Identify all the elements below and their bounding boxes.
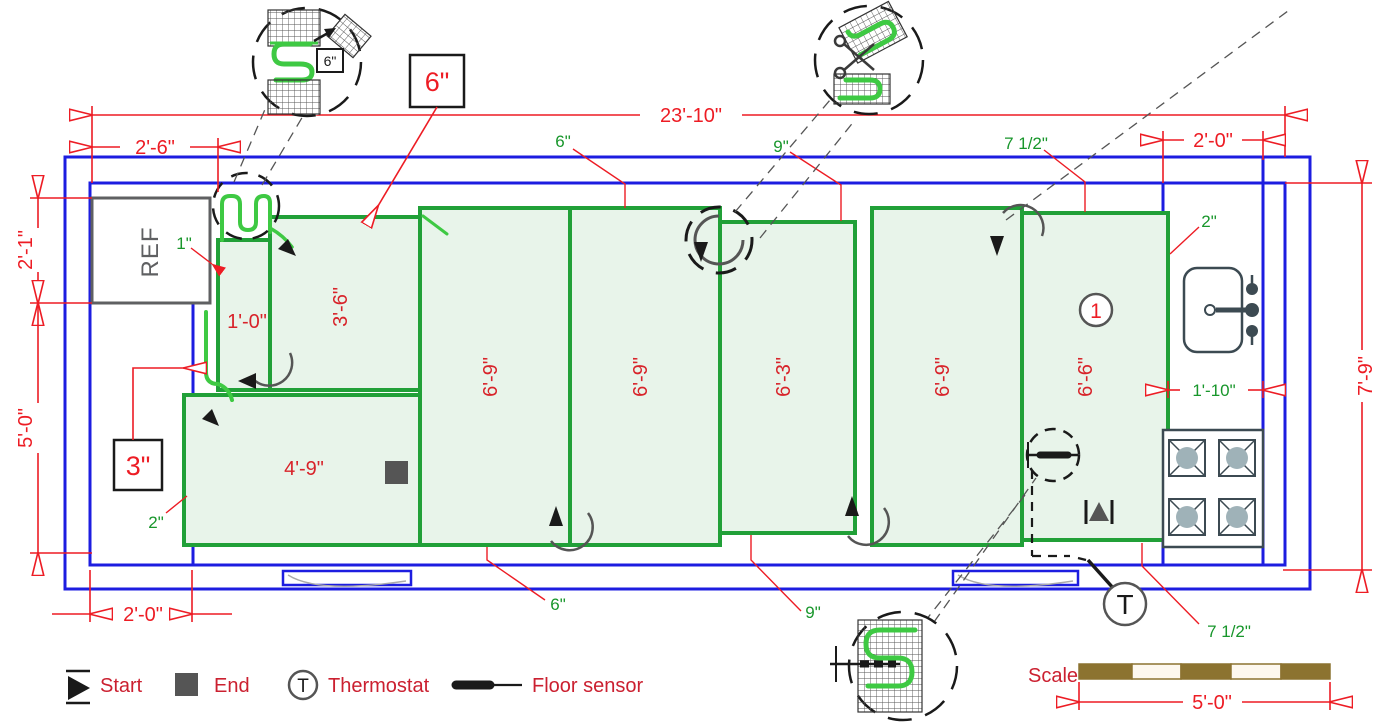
mat-1-0-label: 1'-0" [227,311,267,333]
end-square-icon [175,673,198,696]
legend: Start End T Thermostat Floor sensor [66,671,643,703]
refrigerator: REF [92,198,210,303]
ref-label: REF [137,227,164,278]
mat-6-6-label: 6'-6" [1075,357,1097,397]
offset-bottom-third: 7 1/2" [1207,622,1251,641]
mat-6-3-label: 6'-3" [773,357,795,397]
offset-bottom-second: 9" [805,603,821,622]
dim-counter-width: 1'-10" [1192,381,1235,400]
detail-circle-cut [815,1,923,114]
legend-end-label: End [214,675,250,697]
mat-mesh-icon [268,10,320,46]
dim-total-width: 23'-10" [660,105,722,127]
scale-segment [1132,664,1181,679]
dim-top-left: 2'-6" [135,137,175,159]
offset-ref-gap: 1" [176,234,192,253]
scale-bar: Scale 5'-0" [1028,664,1330,714]
sink [1184,268,1259,352]
start-icon [66,671,90,703]
legend-floor-sensor-label: Floor sensor [532,675,643,697]
detail-circle-mat-spacing: 6" [253,8,371,116]
sink-knob-icon [1246,283,1258,295]
scale-length: 5'-0" [1192,692,1232,714]
dim-bottom-left: 2'-0" [123,604,163,626]
spacing-6-text: 6" [425,67,450,97]
mat-3-6-label: 3'-6" [330,287,352,327]
thermostat-letter: T [1116,589,1133,620]
legend-start-label: Start [100,675,143,697]
legend-thermostat-letter: T [297,676,309,697]
mat-number-text: 1 [1090,300,1102,323]
floor-heating-plan: 1'-0" 3'-6" 4'-9" 6'-9" 6'-9" 6'-3" 6'-9… [0,0,1400,726]
scale-segment [1079,664,1132,679]
spacing-3-leader [133,368,184,440]
scale-segment [1181,664,1231,679]
sink-faucet-icon [1245,303,1259,317]
offset-top-third: 7 1/2" [1004,134,1048,153]
legend-thermostat-label: Thermostat [328,675,430,697]
offset-top-first: 6" [555,132,571,151]
sink-knob-icon [1246,325,1258,337]
scale-segment [1281,664,1330,679]
detail-spacing-text: 6" [324,53,337,69]
mat-number-callout: 1 [1080,294,1112,326]
spacing-3-text: 3" [126,451,151,481]
dim-right-height: 7'-9" [1355,356,1377,396]
mat-6-9-b-label: 6'-9" [630,357,652,397]
detail-circle-sensor [830,612,957,720]
heating-mats [184,208,1168,545]
offset-left-bottom: 2" [148,513,164,532]
offset-bottom-first: 6" [550,595,566,614]
offset-top-second: 9" [773,137,789,156]
stove [1163,430,1263,547]
dim-top-right: 2'-0" [1193,130,1233,152]
dim-left-upper: 2'-1" [15,230,37,270]
dim-left-lower: 5'-0" [15,408,37,448]
scale-label: Scale [1028,665,1078,687]
plan-canvas: 1'-0" 3'-6" 4'-9" 6'-9" 6'-9" 6'-3" 6'-9… [0,0,1400,726]
mat-6-9-a-label: 6'-9" [480,357,502,397]
mat-6-9-c-label: 6'-9" [932,357,954,397]
scale-segment [1231,664,1281,679]
mat-4-9-label: 4'-9" [284,458,324,480]
mat-mesh-icon [268,80,320,114]
offset-corner-right: 2" [1201,212,1217,231]
end-square-icon [385,461,408,484]
